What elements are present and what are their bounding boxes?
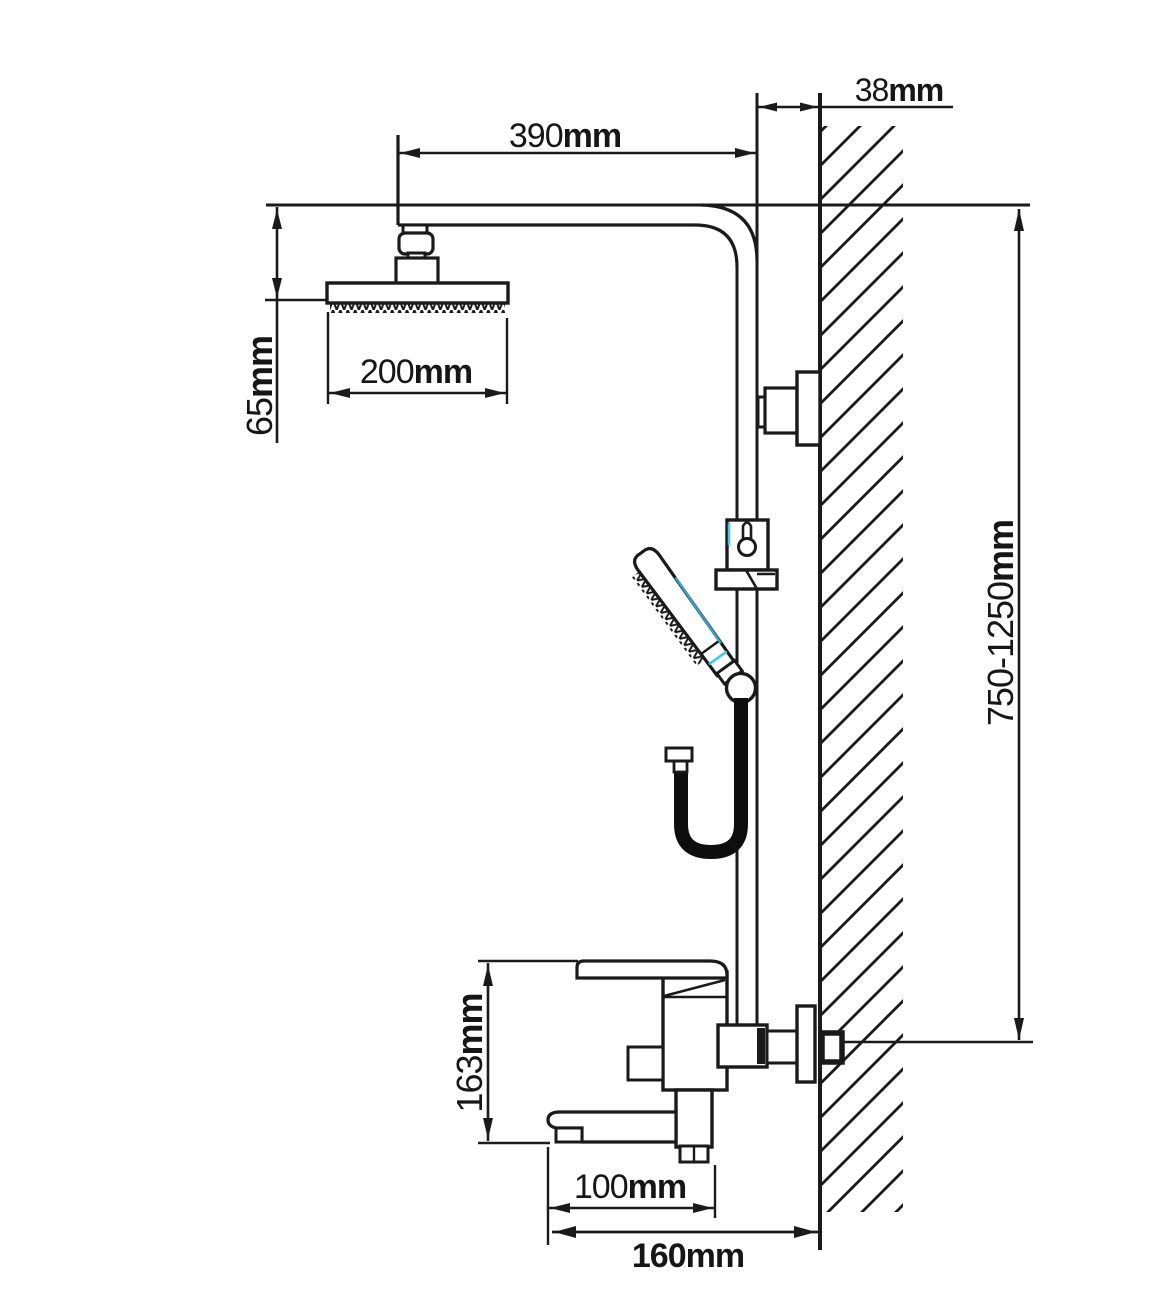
arm-bottom-edge xyxy=(398,225,737,267)
spout-aerator xyxy=(556,1128,582,1142)
head-stem-base xyxy=(396,258,438,284)
arrow-100-right xyxy=(693,1203,713,1213)
dimension-label-head-drop: 65mm xyxy=(239,336,280,436)
arrow-65-down xyxy=(272,278,282,298)
arrow-390-left xyxy=(400,148,420,158)
hose-fitting-cap xyxy=(666,748,692,761)
head-flange xyxy=(327,283,508,303)
arm-outer-corner xyxy=(701,205,757,261)
arrow-163-up xyxy=(483,965,493,986)
diagram-canvas: 390mm 38mm 65mm 200mm 750-1250mm 16 xyxy=(0,0,1169,1295)
wall-escutcheon xyxy=(797,1006,815,1082)
slider-keyhole xyxy=(739,539,756,556)
arrow-100-left xyxy=(550,1203,570,1213)
arrow-riser-up xyxy=(1014,209,1024,231)
arrow-riser-down xyxy=(1014,1018,1024,1040)
dimension-label-spout-reach: 100mm xyxy=(574,1168,686,1206)
arrow-390-right xyxy=(735,148,755,158)
head-spray-nozzles xyxy=(330,303,505,313)
union-nut-shadow xyxy=(757,1028,765,1064)
arrow-200-right xyxy=(485,388,505,398)
hose-u-loop xyxy=(681,698,741,852)
shower-hose xyxy=(666,698,741,852)
dimension-label-wall-to-spout: 160mm xyxy=(632,1237,744,1275)
wall xyxy=(820,93,903,1250)
dimension-label-wall-offset: 38mm xyxy=(855,72,944,108)
wall-supply-elbow xyxy=(822,1033,842,1062)
arrow-65-up xyxy=(272,209,282,229)
arrow-160-right xyxy=(794,1226,816,1238)
dimension-label-head-width: 200mm xyxy=(360,353,472,391)
mixer-faucet xyxy=(577,961,842,1090)
dimension-label-mixer-height: 163mm xyxy=(449,993,490,1112)
spout-riser-connector xyxy=(676,1090,712,1147)
mixer-lever-handle xyxy=(577,961,727,978)
diverter-knob xyxy=(628,1047,663,1080)
tub-spout xyxy=(548,1090,712,1162)
wall-bracket xyxy=(758,372,820,445)
hose-fitting-neck xyxy=(674,761,687,772)
rain-shower-head xyxy=(327,225,508,313)
shower-dimension-diagram: 390mm 38mm 65mm 200mm 750-1250mm 16 xyxy=(0,0,1169,1295)
arrow-200-left xyxy=(330,388,350,398)
dimension-label-riser-height: 750-1250mm xyxy=(980,520,1021,726)
inlet-adapter xyxy=(767,1031,797,1063)
wall-bracket-plate xyxy=(797,372,820,445)
slider-bracket xyxy=(716,520,777,589)
arrow-160-left xyxy=(554,1226,576,1238)
dimension-label-arm-length: 390mm xyxy=(509,117,621,155)
arrow-38-right xyxy=(800,103,818,112)
wall-bracket-arm xyxy=(765,388,797,433)
arrow-38-left xyxy=(759,103,777,112)
head-stem-nut xyxy=(399,233,433,254)
arrow-163-down xyxy=(483,1118,493,1139)
